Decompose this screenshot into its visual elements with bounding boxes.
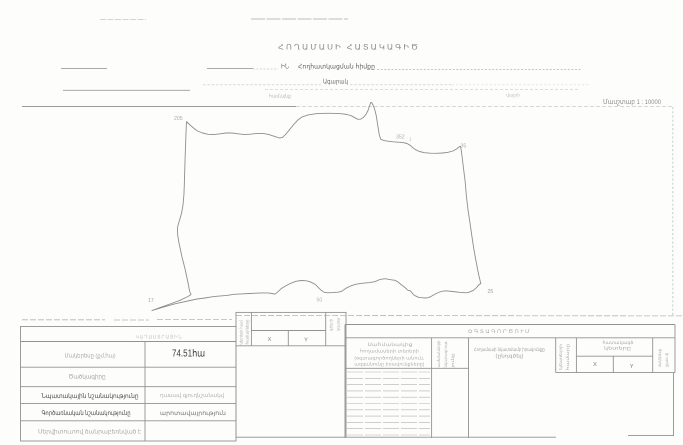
svg-text:Մասշտաբ 1 : 10000: Մասշտաբ 1 : 10000 bbox=[603, 98, 661, 106]
svg-text:352: 352 bbox=[396, 134, 405, 140]
svg-text:համայնք: համայնք bbox=[269, 93, 291, 99]
svg-text:(ընդգծել): (ընդգծել) bbox=[496, 353, 524, 359]
svg-text:X: X bbox=[593, 362, 597, 368]
svg-text:Y: Y bbox=[304, 337, 308, 343]
svg-text:յունը: յունը bbox=[450, 353, 455, 369]
svg-text:ԿԱԴԱՍՏՐԱՅԻՆ: ԿԱԴԱՍՏՐԱՅԻՆ bbox=[136, 334, 183, 340]
svg-text:կետերի: կետերի bbox=[558, 343, 563, 370]
svg-text:Նպատակային նշանակությունը: Նպատակային նշանակությունը bbox=[42, 393, 139, 400]
svg-text:ազգանունը իրավունքները): ազգանունը իրավունքները) bbox=[354, 362, 424, 368]
svg-text:25: 25 bbox=[488, 289, 494, 295]
svg-text:205: 205 bbox=[174, 116, 183, 122]
svg-text:համարները: համարները bbox=[245, 319, 250, 344]
svg-text:Սահմանակից: Սահմանակից bbox=[368, 342, 413, 348]
svg-text:ՀՈՂԱՄԱՍԻ ՀԱՏԱԿԱԳԻԾ: ՀՈՂԱՄԱՍԻ ՀԱՏԱԿԱԳԻԾ bbox=[278, 43, 420, 52]
svg-text:համարը: համարը bbox=[565, 343, 570, 370]
svg-text:մակերեսը: մակերեսը bbox=[657, 349, 662, 367]
svg-text:74.51հա: 74.51հա bbox=[172, 348, 205, 359]
svg-text:արոտավայրություն: արոտավայրություն bbox=[160, 410, 226, 417]
svg-text:Ագարակ: Ագարակ bbox=[323, 78, 348, 86]
svg-text:(քառ.մ): (քառ.մ) bbox=[664, 352, 669, 367]
svg-text:նկարագրութ-: նկարագրութ- bbox=[443, 340, 448, 369]
svg-text:սահմանների: սահմանների bbox=[436, 340, 441, 367]
svg-text:X: X bbox=[268, 337, 272, 343]
svg-text:50: 50 bbox=[317, 297, 323, 303]
svg-text:Սերվիտուտով ծանրաբեռնված է: Սերվիտուտով ծանրաբեռնված է bbox=[38, 428, 141, 435]
svg-text:1: 1 bbox=[409, 136, 412, 141]
svg-text:Y: Y bbox=[630, 364, 634, 370]
svg-text:Գործառնական նշանակությունը: Գործառնական նշանակությունը bbox=[42, 410, 131, 417]
svg-text:Հողամասի նկատմամբ իրավունքը: Հողամասի նկատմամբ իրավունքը bbox=[474, 347, 545, 353]
svg-text:17: 17 bbox=[148, 298, 154, 304]
svg-text:կետերը: կետերը bbox=[604, 345, 631, 351]
svg-text:Մակերեսը (քմ,հա): Մակերեսը (քմ,հա) bbox=[65, 353, 116, 360]
svg-text:դասավ գյուղնշանակվ: դասավ գյուղնշանակվ bbox=[160, 393, 225, 399]
svg-text:35: 35 bbox=[461, 143, 467, 149]
svg-text:վայրի: վայրի bbox=[506, 93, 520, 98]
svg-text:հողամասերի տերերի: հողամասերի տերերի bbox=[360, 349, 419, 355]
svg-text:ԻՆ: ԻՆ bbox=[281, 63, 289, 71]
svg-text:Հողհատկացման հիմքը: Հողհատկացման հիմքը bbox=[298, 63, 375, 71]
svg-text:գծերի: գծերի bbox=[329, 319, 334, 331]
svg-text:կետերի համ.: կետերի համ. bbox=[239, 320, 244, 345]
svg-text:Ծածկագիրը: Ծածկագիրը bbox=[69, 374, 106, 381]
svg-text:ՕԳՏԱԳՈՐԾՈՒՄ: ՕԳՏԱԳՈՐԾՈՒՄ bbox=[468, 329, 531, 335]
svg-text:երկարութ: երկարութ bbox=[336, 318, 341, 331]
